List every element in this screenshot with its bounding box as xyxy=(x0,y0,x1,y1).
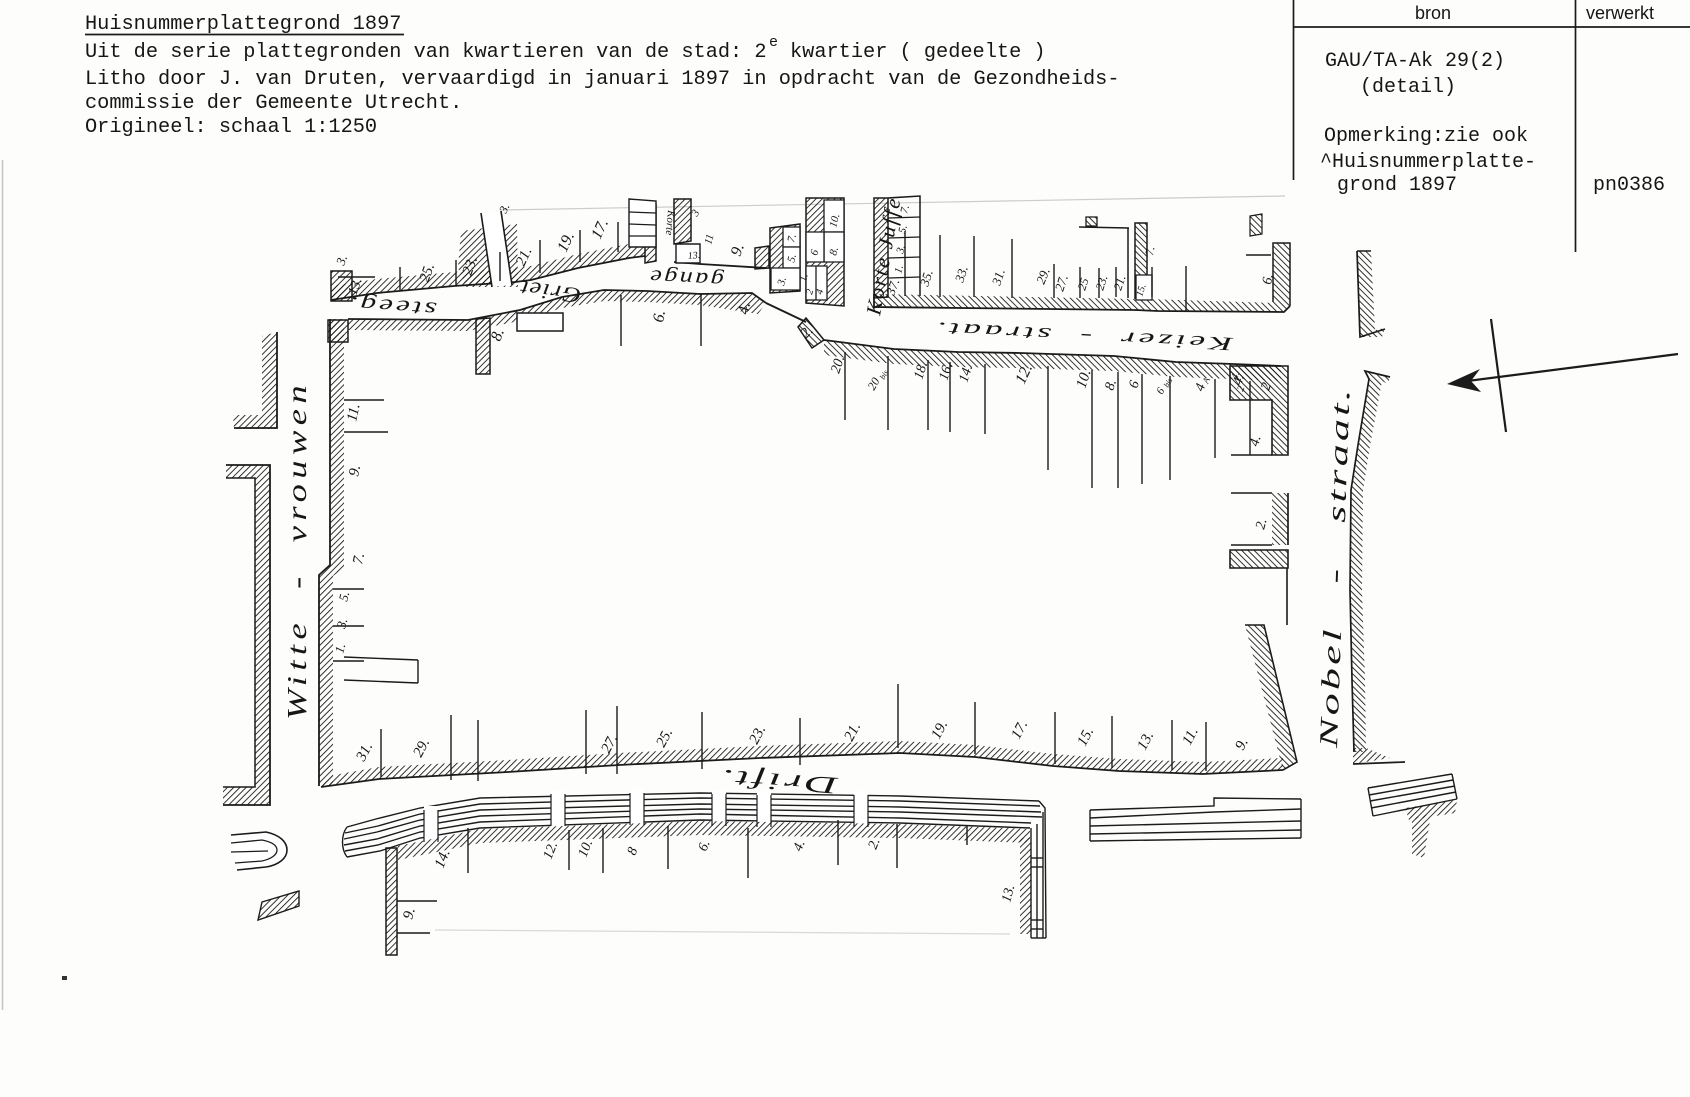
svg-text:8: 8 xyxy=(625,845,642,857)
svg-text:3.: 3. xyxy=(332,253,350,268)
svg-text:19.: 19. xyxy=(554,229,578,254)
svg-text:35.: 35. xyxy=(916,268,936,289)
svg-text:13.: 13. xyxy=(999,883,1018,904)
svg-text:7.: 7. xyxy=(1142,245,1157,256)
svg-text:25: 25 xyxy=(1075,276,1092,292)
svg-text:23.: 23. xyxy=(1093,273,1111,292)
svg-text:4.: 4. xyxy=(791,838,809,853)
svg-text:8.: 8. xyxy=(488,326,508,343)
svg-text:27.: 27. xyxy=(598,732,621,756)
svg-text:Korte: Korte xyxy=(663,209,677,236)
svg-text:7.: 7. xyxy=(350,552,368,566)
svg-text:15.: 15. xyxy=(1074,725,1097,749)
svg-text:25.: 25. xyxy=(653,726,676,750)
svg-text:commissie der Gemeente Utrecht: commissie der Gemeente Utrecht. xyxy=(85,92,462,115)
svg-text:gange: gange xyxy=(647,265,724,293)
svg-text:6.: 6. xyxy=(696,838,714,853)
svg-text:1.: 1. xyxy=(892,264,906,275)
svg-text:31.: 31. xyxy=(988,267,1008,288)
svg-text:19.: 19. xyxy=(928,718,951,742)
svg-text:13.: 13. xyxy=(687,250,700,262)
svg-text:Opmerking:zie ook: Opmerking:zie ook xyxy=(1324,125,1528,148)
svg-text:31.: 31. xyxy=(353,740,376,765)
svg-text:6.: 6. xyxy=(650,309,669,324)
svg-text:12.: 12. xyxy=(541,840,561,862)
svg-text:9.: 9. xyxy=(400,906,418,921)
svg-text:2.: 2. xyxy=(1253,517,1270,531)
svg-text:23.: 23. xyxy=(746,723,769,747)
svg-text:Witte - vrouwen: Witte - vrouwen xyxy=(282,380,312,720)
svg-text:Litho door J. van Druten, verv: Litho door J. van Druten, vervaardigd in… xyxy=(85,68,1120,91)
svg-text:Origineel: schaal 1:1250: Origineel: schaal 1:1250 xyxy=(85,116,377,139)
svg-text:11.: 11. xyxy=(344,402,363,423)
svg-text:6: 6 xyxy=(1127,379,1143,390)
svg-text:9.: 9. xyxy=(728,241,748,258)
svg-text:21.: 21. xyxy=(1111,273,1129,292)
svg-text:GAU/TA-Ak 29(2): GAU/TA-Ak 29(2) xyxy=(1325,50,1505,73)
svg-text:17.: 17. xyxy=(1008,718,1031,742)
svg-text:Keizer - straat.: Keizer - straat. xyxy=(933,317,1236,354)
svg-text:kwartier ( gedeelte ): kwartier ( gedeelte ) xyxy=(790,41,1046,64)
svg-text:10.: 10. xyxy=(576,838,596,860)
svg-text:13.: 13. xyxy=(1134,729,1157,753)
svg-text:steeg.: steeg. xyxy=(346,292,437,322)
svg-text:29.: 29. xyxy=(410,736,433,760)
svg-text:^Huisnummerplatte-: ^Huisnummerplatte- xyxy=(1320,151,1536,174)
svg-text:17.: 17. xyxy=(588,216,612,241)
svg-text:3.: 3. xyxy=(333,616,350,630)
svg-text:(detail): (detail) xyxy=(1360,76,1456,99)
svg-text:11: 11 xyxy=(702,233,716,246)
svg-text:bron: bron xyxy=(1415,3,1451,23)
svg-text:2.: 2. xyxy=(866,836,884,851)
svg-text:9.: 9. xyxy=(346,464,364,478)
svg-text:11.: 11. xyxy=(1179,725,1201,748)
svg-text:bis: bis xyxy=(1162,376,1174,389)
svg-text:9.: 9. xyxy=(1232,735,1251,752)
svg-text:e: e xyxy=(769,34,778,51)
svg-text:1.: 1. xyxy=(331,641,348,654)
svg-text:33.: 33. xyxy=(951,264,971,285)
svg-text:5.: 5. xyxy=(335,589,352,602)
svg-text:grond 1897: grond 1897 xyxy=(1337,174,1457,197)
svg-text:verwerkt: verwerkt xyxy=(1586,3,1654,23)
svg-text:Huisnummerplattegrond 1897: Huisnummerplattegrond 1897 xyxy=(85,13,401,36)
svg-text:29.: 29. xyxy=(1033,265,1053,286)
svg-text:pn0386: pn0386 xyxy=(1593,174,1665,197)
svg-text:Uit de serie plattegronden van: Uit de serie plattegronden van kwartiere… xyxy=(85,41,767,64)
svg-text:21.: 21. xyxy=(841,720,864,744)
